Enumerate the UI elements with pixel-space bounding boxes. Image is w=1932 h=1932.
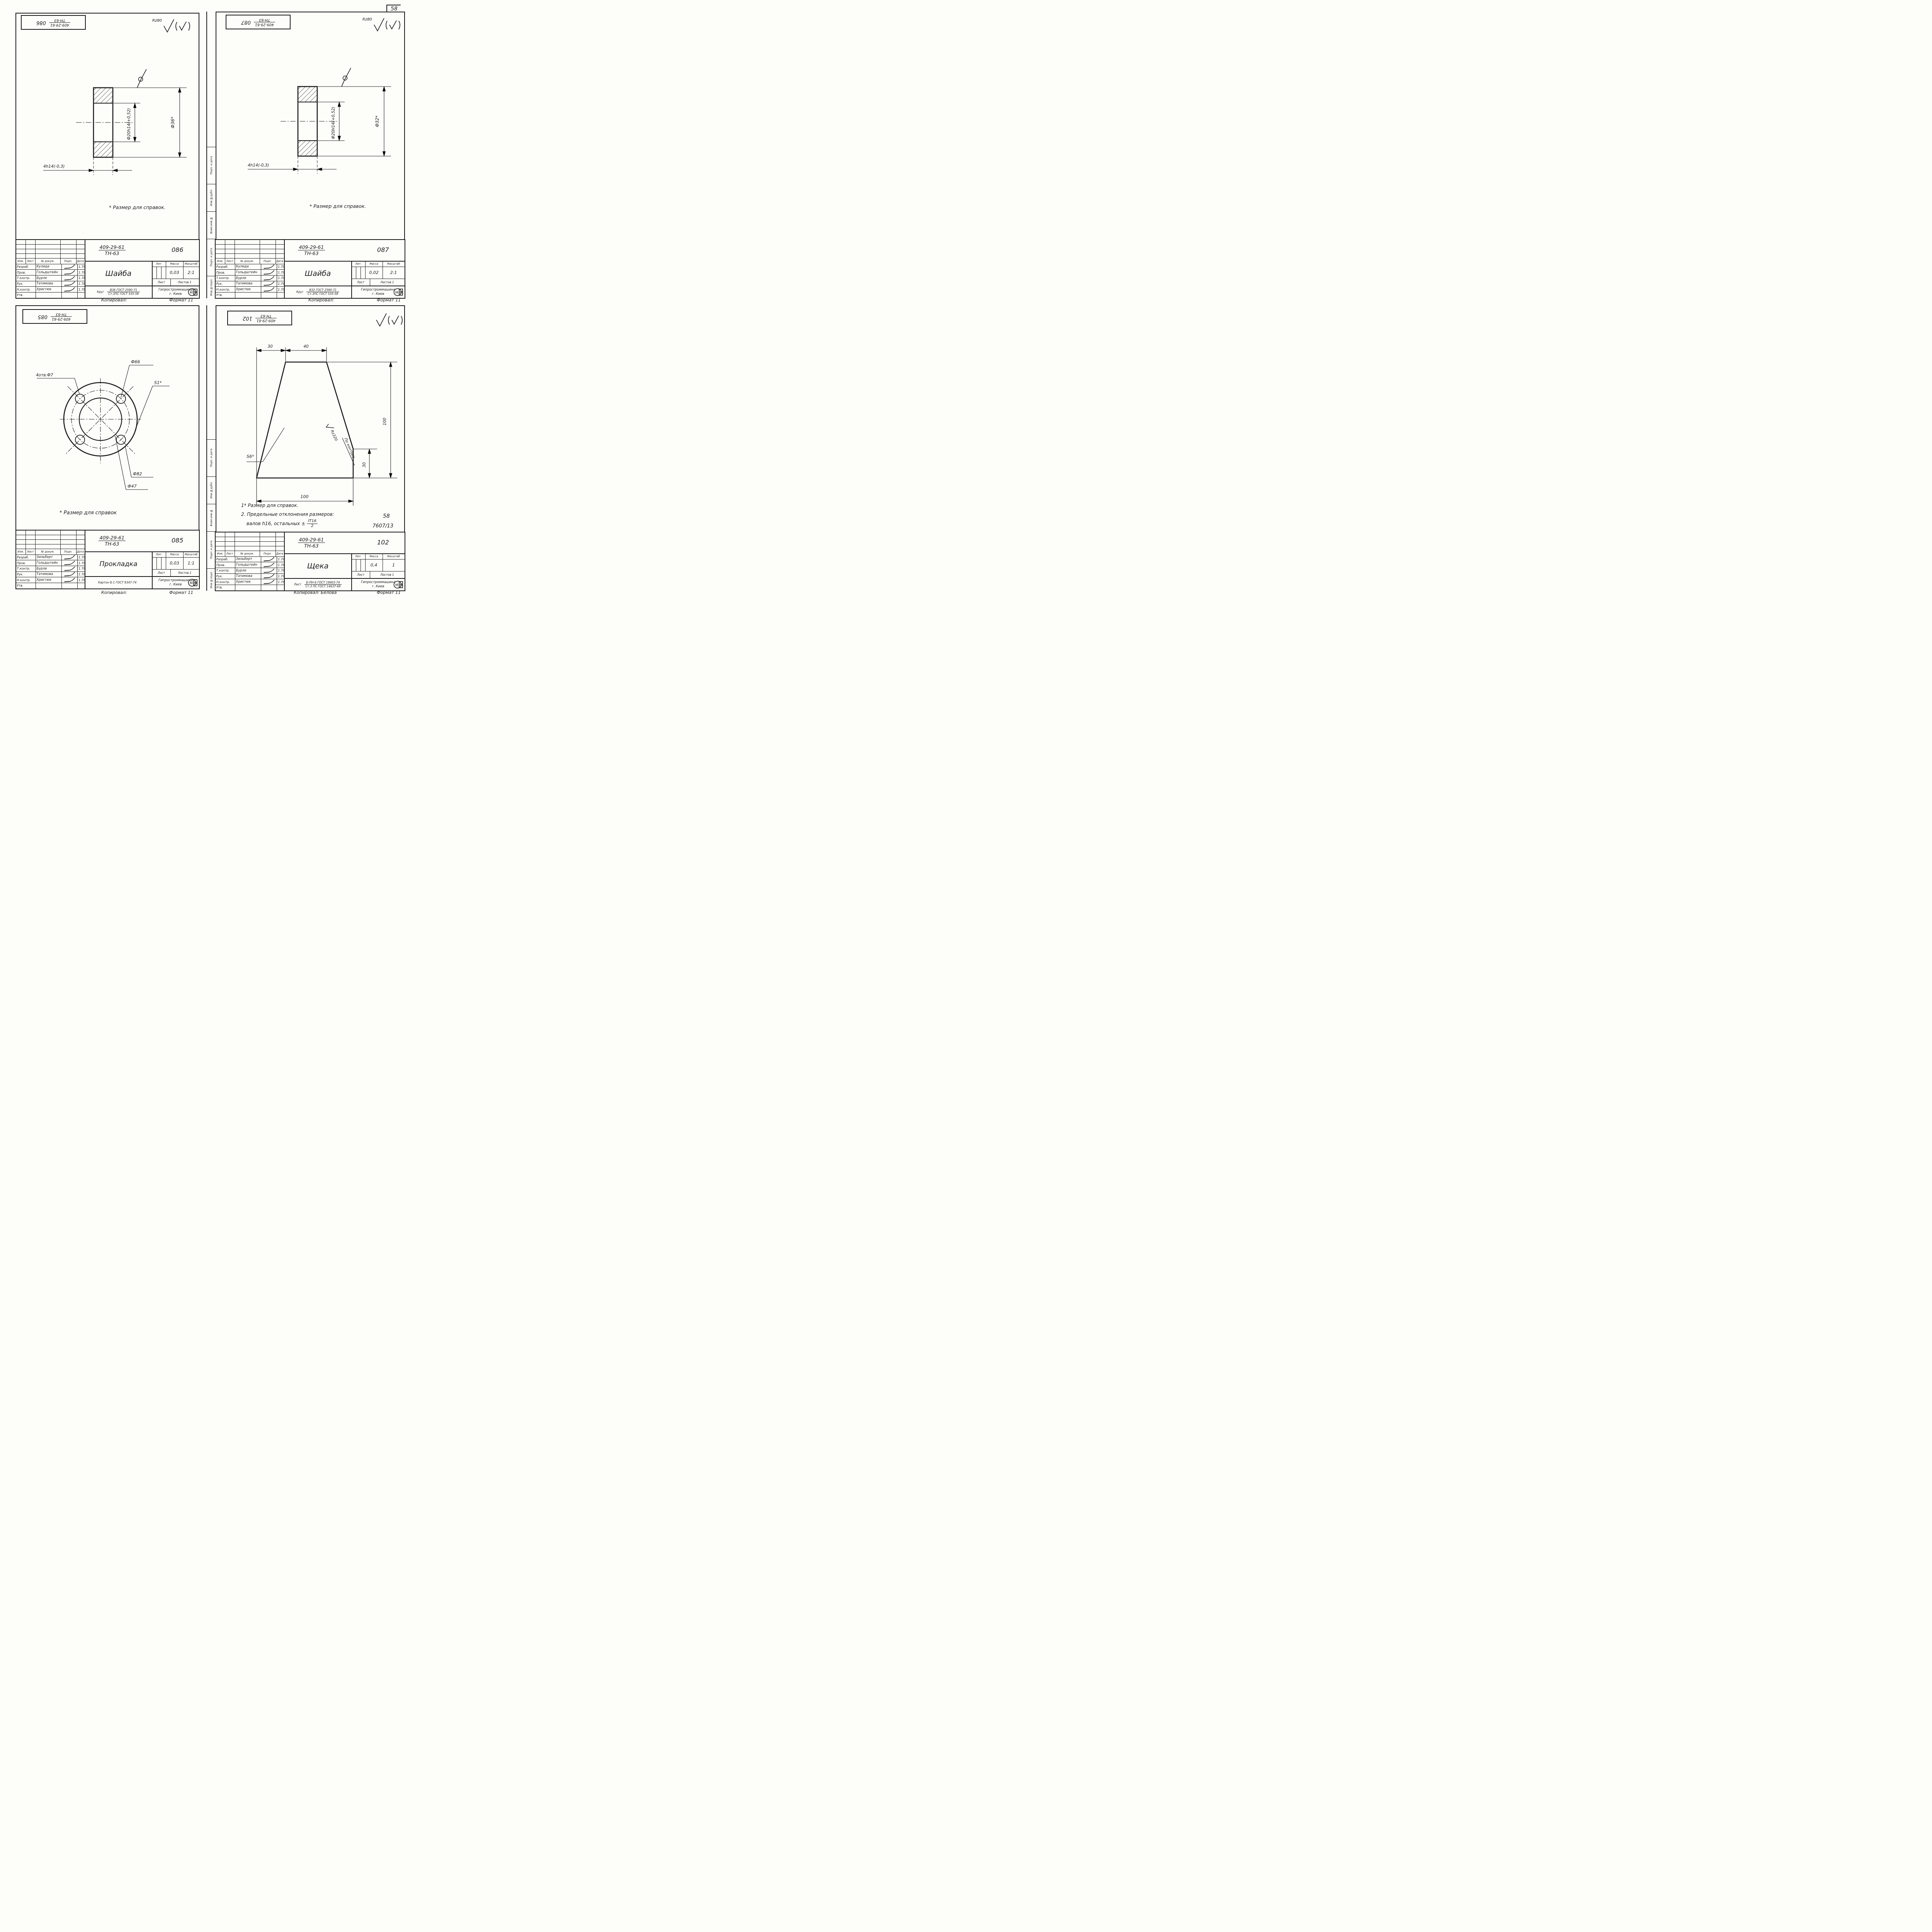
dim-outer-diameter: Ф36* [170,117,175,129]
material-spec: Круг В36 ГОСТ 2590-71Ст.3ПС ГОСТ 535-58 [85,286,153,298]
washer-section-view: Ф20H14(+0,52) Ф32* 4h14(-0,3) [242,66,396,194]
signature-mark [64,287,75,292]
copied-by-label: Копировал: [101,298,127,303]
signature-mark [263,265,274,269]
dim-inner-diameter: Ф47 [128,484,136,489]
factory-logo-icon: М М [393,288,403,296]
format-label: Формат 11 [377,298,401,303]
dim-top: 40 [303,344,309,349]
part-number: 087 [377,246,389,253]
part-name: Прокладка [85,552,153,576]
roughness-mark [365,312,410,328]
note-2: 2. Предельные отклонения размеров: [241,510,334,519]
scale-value: 2:1 [383,267,405,279]
scale-value: 2:1 [184,267,199,279]
roughness-value: Rz80 [152,19,162,23]
organization: Гипростроммашинаг. Киев М М [352,579,405,590]
scale-value: 1 [383,560,405,571]
part-name: Шайба [285,262,352,286]
notes: 1* Размер для справок. 2. Предельные отк… [241,501,334,529]
factory-logo-icon: М М [188,578,198,587]
signature-mark [64,561,75,565]
format-label: Формат 11 [169,298,193,303]
gasket-front-view: 4отв.Ф7 Ф66 S1* Ф82 Ф47 [26,343,196,513]
svg-text:М: М [190,291,193,295]
factory-logo-icon: М М [188,288,198,296]
signature-mark [263,557,274,562]
handwritten-inventory-number: 7607/13 [372,523,393,529]
inverted-doc-stamp: 409-29-61ТН-63 102 [227,311,292,325]
title-block: Изм.Лист№ докум.Подп.Дата Разраб.Зильбер… [215,532,405,591]
signature-mark [263,270,274,275]
mass-value: 0,03 [166,267,184,279]
reference-note: * Размер для справок. [310,203,366,209]
doc-designation: 409-29-61ТН-63 086 [85,240,199,262]
signature-mark [64,276,75,281]
part-name: Щека [285,554,352,578]
signature-mark [64,282,75,286]
dim-inner-diameter: Ф20H14(+0,52) [331,107,336,139]
doc-designation: 409-29-61ТН-63 102 [285,532,405,554]
format-label: Формат 11 [377,590,401,595]
dim-roughness-contour: Rz320 [330,429,338,442]
copied-by-label: Копировал: [101,590,127,595]
signature-mark [263,574,274,579]
mass-value: 0,4 [366,560,383,571]
inverted-doc-stamp: 409-29-61ТН-63 085 [22,309,87,324]
material-spec: Картон Б-1 ГОСТ 9347-74 [85,577,153,588]
inverted-doc-stamp: 409-29-61ТН-63 087 [226,15,291,29]
signature-mark [263,276,274,281]
roughness-check-icon [375,312,405,328]
dim-thickness: 4h14(-0,3) [248,163,269,168]
dim-bolt-circle: Ф66 [131,359,140,364]
part-number: 086 [172,246,184,253]
title-block: Изм.Лист№ докум.Подп.Дата Разраб.Кулида1… [15,239,200,299]
signature-mark [64,555,75,560]
part-number: 085 [172,537,184,544]
svg-text:М: М [400,583,403,587]
signature-mark [263,287,274,292]
dim-thickness: 4h14(-0,3) [43,164,65,169]
part-name: Шайба [85,262,153,286]
organization: Гипростроммашинаг. Киев М М [352,286,405,298]
mass-value: 0,03 [166,558,184,569]
format-label: Формат 11 [169,590,193,595]
dim-height: 100 [383,418,387,425]
sheet-102: Подп. и дата Инв.№дубл. Взам.инв.№ Подп.… [206,305,405,591]
washer-section-view: Ф20h14(+0,52) Ф36* 4h14(-0,3) [37,68,192,195]
doc-designation: 409-29-61ТН-63 087 [285,240,405,262]
handwritten-page-number: 58 [383,513,390,519]
signature-mark [263,580,274,584]
inverted-doc-stamp: 409-29-61ТН-63 086 [21,15,86,30]
dim-outer-diameter: Ф82 [133,471,142,476]
signature-mark [263,563,274,567]
roughness-mark: Rz80 [362,17,408,33]
signature-mark [263,282,274,286]
svg-text:М: М [395,291,398,295]
note-3: валов h16, остальных ± IT162 [241,519,334,529]
dim-inner-diameter: Ф20h14(+0,52) [127,108,131,140]
svg-text:М: М [395,583,398,587]
sheet-085: 409-29-61ТН-63 085 4о [15,305,199,589]
factory-logo-icon: М М [393,580,403,589]
signature-mark [64,270,75,275]
dim-thickness: S1* [154,380,162,385]
dim-holes: 4отв.Ф7 [36,373,53,378]
svg-text:М: М [400,291,403,295]
material-spec: Круг В32 ГОСТ 2590-71Ст.3ПС ГОСТ 535-58 [285,286,352,298]
part-number: 102 [377,539,389,546]
roughness-mark: Rz80 [152,18,198,34]
title-block: Изм.Лист№ докум.Подп.Дата Разраб.Кулида1… [215,239,405,299]
svg-text:М: М [194,582,197,585]
dim-thickness: S6* [247,454,254,459]
dim-outer-diameter: Ф32* [374,116,380,128]
signature-mark [263,568,274,573]
organization: Гипростроммашинаг. Киев М М [153,577,199,588]
cheek-plate-view: 30 40 100 30 100 Rz320 По контуру S6* [246,339,408,517]
sheet-086: 409-29-61ТН-63 086 Rz80 [15,13,199,298]
signature-mark [64,572,75,577]
mass-value: 0,02 [366,267,383,279]
contour-label: По контуру [343,437,356,459]
dim-step: 30 [362,462,367,468]
scanned-drawing-sheet: 58 409-29-61ТН-63 086 Rz80 [0,0,417,605]
signature-mark [64,578,75,582]
note-1: 1* Размер для справок. [241,501,334,510]
copied-by-label: Копировал: [308,298,334,303]
reference-note: * Размер для справок. [109,204,165,210]
signature-mark [64,265,75,269]
roughness-value: Rz80 [362,17,372,22]
doc-designation: 409-29-61ТН-63 085 [85,531,199,552]
scale-value: 1:1 [184,558,199,569]
roughness-check-icon [372,17,403,33]
page-number: 58 [386,5,401,12]
roughness-check-icon [162,18,192,34]
organization: Гипростроммашинаг. Киев М М [153,286,199,298]
dim-bottom: 100 [301,494,309,499]
svg-text:М: М [194,291,197,295]
dim-top-left: 30 [267,344,273,349]
svg-text:М: М [190,582,193,585]
title-block: Изм.Лист№ докум.Подп.Дата Разраб.Зильбер… [15,530,200,589]
material-spec: Лист Б-ПН-6 ГОСТ 19903-74Ст.3 ПС ГОСТ 14… [285,579,352,590]
signature-mark [64,566,75,571]
reference-note: * Размер для справок [60,510,117,516]
copied-by-label: Копировал: Белова [294,590,337,595]
sheet-087: Подп. и дата Инв.№дубл. Взам.инв.№ Подп.… [206,12,405,298]
